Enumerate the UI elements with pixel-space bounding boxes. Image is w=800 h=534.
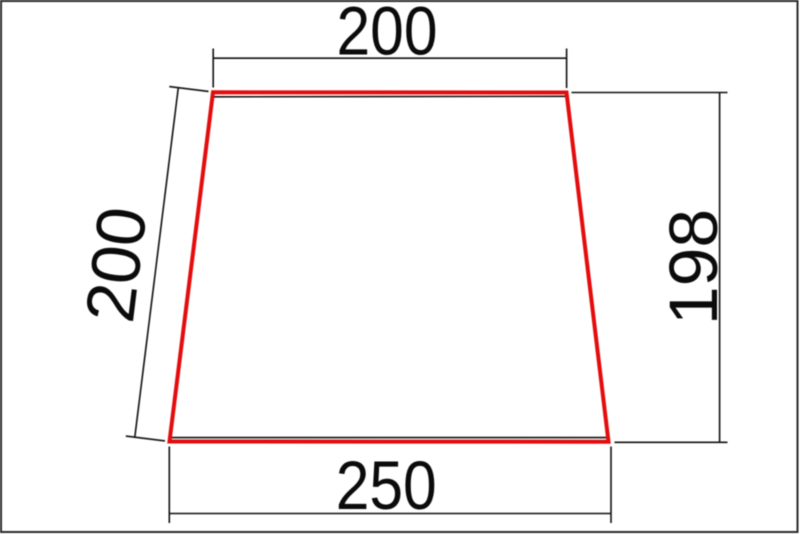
svg-text:200: 200 bbox=[71, 203, 161, 327]
svg-text:200: 200 bbox=[337, 0, 438, 69]
svg-text:250: 250 bbox=[336, 447, 437, 524]
svg-text:198: 198 bbox=[655, 209, 732, 325]
